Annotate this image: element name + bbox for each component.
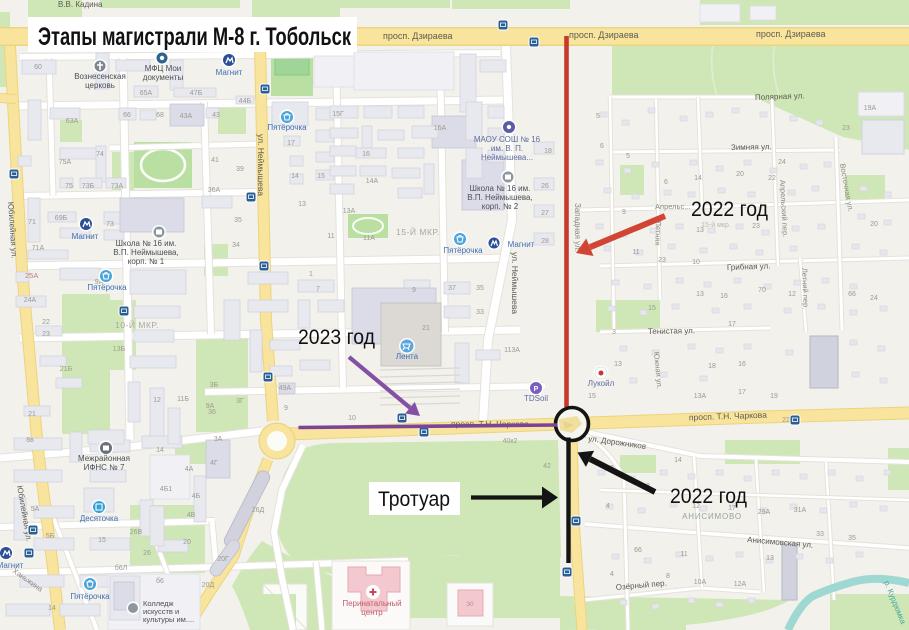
svg-text:3: 3 <box>612 329 616 336</box>
svg-text:TDSoil: TDSoil <box>524 394 548 403</box>
svg-text:11А: 11А <box>363 235 375 242</box>
svg-text:16: 16 <box>720 293 728 300</box>
svg-text:4: 4 <box>606 503 610 510</box>
svg-text:Пятёрочка: Пятёрочка <box>70 592 110 601</box>
svg-text:13: 13 <box>696 291 704 298</box>
svg-text:18: 18 <box>708 363 716 370</box>
svg-text:Тротуар: Тротуар <box>378 487 450 511</box>
svg-text:36: 36 <box>208 409 216 416</box>
svg-text:60: 60 <box>34 64 42 71</box>
svg-text:10: 10 <box>692 259 700 266</box>
svg-text:1: 1 <box>309 271 313 278</box>
svg-text:Неймышева...: Неймышева... <box>481 153 533 162</box>
svg-text:24А: 24А <box>24 297 37 304</box>
svg-text:15-Й МКР.: 15-Й МКР. <box>396 226 440 237</box>
svg-text:Пятёрочка: Пятёрочка <box>87 283 127 292</box>
svg-text:Магнит: Магнит <box>0 561 24 570</box>
svg-text:корп. № 2: корп. № 2 <box>482 202 519 211</box>
svg-text:5: 5 <box>626 153 630 160</box>
svg-text:13: 13 <box>614 361 622 368</box>
svg-text:23: 23 <box>658 257 666 264</box>
svg-text:12: 12 <box>788 291 796 298</box>
svg-text:4А: 4А <box>185 466 194 473</box>
svg-text:21: 21 <box>28 411 36 418</box>
svg-text:26В: 26В <box>130 529 143 536</box>
svg-text:13Б: 13Б <box>113 346 126 353</box>
svg-text:23: 23 <box>842 125 850 132</box>
svg-text:13: 13 <box>298 201 306 208</box>
svg-text:19А: 19А <box>864 105 877 112</box>
svg-text:66: 66 <box>848 291 856 298</box>
svg-text:Тенистая ул.: Тенистая ул. <box>648 326 695 336</box>
svg-text:13: 13 <box>766 555 774 562</box>
svg-text:3Г: 3Г <box>236 398 244 405</box>
svg-text:5Б: 5Б <box>46 533 55 540</box>
svg-text:10-Й МКР.: 10-Й МКР. <box>115 319 159 330</box>
svg-text:Десяточка: Десяточка <box>80 514 119 523</box>
svg-text:им. В. П.: им. В. П. <box>491 144 523 153</box>
svg-text:14: 14 <box>674 457 682 464</box>
svg-text:26Д: 26Д <box>252 507 265 514</box>
svg-text:6: 6 <box>664 179 668 186</box>
svg-text:16А: 16А <box>434 125 447 132</box>
svg-text:74: 74 <box>96 151 104 158</box>
svg-text:5А: 5А <box>31 506 40 513</box>
svg-text:15Г: 15Г <box>332 111 344 118</box>
svg-text:6: 6 <box>600 143 604 150</box>
svg-text:21: 21 <box>422 325 430 332</box>
svg-text:10: 10 <box>348 415 356 422</box>
svg-text:2022 год: 2022 год <box>691 198 768 221</box>
svg-text:14: 14 <box>48 605 56 612</box>
svg-text:24: 24 <box>778 159 786 166</box>
svg-text:В.В. Кадина: В.В. Кадина <box>58 0 103 9</box>
svg-text:75А: 75А <box>59 159 72 166</box>
svg-text:35: 35 <box>848 535 856 542</box>
svg-text:Полярная ул.: Полярная ул. <box>755 91 805 102</box>
svg-text:просп. Дзираева: просп. Дзираева <box>383 31 453 41</box>
svg-text:просп. Дзираева: просп. Дзираева <box>756 29 826 39</box>
svg-text:15: 15 <box>588 393 596 400</box>
svg-text:ул. Неймышева: ул. Неймышева <box>510 252 520 314</box>
svg-text:14: 14 <box>156 447 164 454</box>
svg-text:75: 75 <box>65 183 73 190</box>
svg-text:Грибная ул.: Грибная ул. <box>727 261 771 272</box>
svg-text:68: 68 <box>156 112 164 119</box>
svg-text:28: 28 <box>541 238 549 245</box>
svg-text:27: 27 <box>541 210 549 217</box>
svg-text:30: 30 <box>466 601 474 608</box>
svg-text:17: 17 <box>287 140 295 147</box>
svg-text:73Б: 73Б <box>82 183 95 190</box>
svg-text:18: 18 <box>544 148 552 155</box>
svg-text:4: 4 <box>610 571 614 578</box>
svg-text:12А: 12А <box>734 581 747 588</box>
svg-text:33: 33 <box>816 531 824 538</box>
svg-text:Вознесенская: Вознесенская <box>74 72 126 81</box>
svg-text:б6Л: б6Л <box>115 564 128 572</box>
svg-text:70: 70 <box>758 287 766 294</box>
svg-text:Этапы магистрали М-8 г. Тоболь: Этапы магистрали М-8 г. Тобольск <box>38 23 351 51</box>
svg-text:Межрайонная: Межрайонная <box>78 454 130 463</box>
svg-text:3А: 3А <box>214 436 223 443</box>
svg-text:20Г: 20Г <box>217 556 229 563</box>
svg-text:б6: б6 <box>156 577 164 585</box>
svg-text:66: 66 <box>123 112 131 119</box>
svg-text:МФЦ Мои: МФЦ Мои <box>145 64 181 73</box>
svg-text:14: 14 <box>694 175 702 182</box>
svg-text:3Б: 3Б <box>210 382 219 389</box>
svg-text:МАОУ СОШ № 16: МАОУ СОШ № 16 <box>474 135 541 144</box>
svg-text:7: 7 <box>316 286 320 293</box>
svg-text:34: 34 <box>232 242 240 249</box>
svg-text:12: 12 <box>153 397 161 404</box>
svg-text:14А: 14А <box>366 178 379 185</box>
svg-text:ул. Неймышева: ул. Неймышева <box>256 134 266 196</box>
svg-text:14: 14 <box>291 173 299 180</box>
svg-text:13А: 13А <box>343 208 356 215</box>
svg-text:65А: 65А <box>140 90 153 97</box>
svg-text:23: 23 <box>42 331 50 338</box>
svg-text:5: 5 <box>596 113 600 120</box>
svg-text:33: 33 <box>476 309 484 316</box>
svg-text:центр: центр <box>361 608 383 617</box>
svg-text:11: 11 <box>327 233 334 240</box>
svg-text:40к2: 40к2 <box>503 438 518 445</box>
svg-text:29А: 29А <box>758 509 771 516</box>
svg-text:22: 22 <box>42 319 50 326</box>
svg-text:22: 22 <box>768 175 776 182</box>
svg-text:4Г: 4Г <box>210 460 218 467</box>
svg-text:13: 13 <box>696 227 704 234</box>
svg-text:71А: 71А <box>32 245 45 252</box>
svg-text:26: 26 <box>143 550 151 557</box>
svg-text:4Б: 4Б <box>192 493 201 500</box>
svg-text:2022 год: 2022 год <box>670 485 747 508</box>
svg-text:49А: 49А <box>279 385 292 392</box>
svg-text:Пятёрочка: Пятёрочка <box>443 246 483 255</box>
svg-text:43: 43 <box>212 112 220 119</box>
svg-text:документы: документы <box>143 73 184 82</box>
svg-text:В.П. Неймышева,: В.П. Неймышева, <box>467 193 532 202</box>
svg-text:Летняя: Летняя <box>653 221 663 246</box>
svg-text:15: 15 <box>648 305 656 312</box>
svg-text:Пятёрочка: Пятёрочка <box>267 123 307 132</box>
svg-text:просп. Дзираева: просп. Дзираева <box>569 30 639 40</box>
svg-text:15-й мкр.: 15-й мкр. <box>701 221 731 229</box>
svg-text:корп. № 1: корп. № 1 <box>128 257 165 266</box>
svg-text:Школа № 16 им.: Школа № 16 им. <box>116 239 177 248</box>
svg-text:20Д: 20Д <box>202 582 215 589</box>
svg-text:37: 37 <box>448 285 456 292</box>
svg-text:16: 16 <box>738 361 746 368</box>
svg-text:Апрельс...: Апрельс... <box>655 202 690 211</box>
svg-text:41: 41 <box>211 157 219 164</box>
svg-text:ИФНС № 7: ИФНС № 7 <box>84 463 125 472</box>
svg-text:Магнит: Магнит <box>72 232 99 241</box>
svg-text:25А: 25А <box>25 271 38 280</box>
svg-text:Лукойл: Лукойл <box>588 379 615 388</box>
svg-text:культуры им....: культуры им.... <box>143 615 194 624</box>
svg-text:43А: 43А <box>180 113 193 120</box>
svg-text:Магнит: Магнит <box>216 68 243 77</box>
svg-text:Западная ул.: Западная ул. <box>573 203 582 252</box>
svg-text:39: 39 <box>236 166 244 173</box>
svg-text:73: 73 <box>106 221 114 228</box>
svg-text:17: 17 <box>738 389 746 396</box>
svg-text:10А: 10А <box>694 579 707 586</box>
svg-text:15: 15 <box>317 173 325 180</box>
svg-text:20: 20 <box>870 221 878 228</box>
svg-text:17: 17 <box>728 321 736 328</box>
svg-text:Лента: Лента <box>396 352 419 361</box>
svg-text:35: 35 <box>234 217 242 224</box>
svg-text:P: P <box>534 386 539 393</box>
svg-text:11: 11 <box>632 249 639 256</box>
svg-text:Школа № 16 им.: Школа № 16 им. <box>470 184 531 193</box>
svg-text:73А: 73А <box>111 183 124 190</box>
svg-text:АНИСИМОВО: АНИСИМОВО <box>682 512 742 521</box>
svg-text:26: 26 <box>541 183 549 190</box>
svg-text:20: 20 <box>736 171 744 178</box>
svg-text:47Б: 47Б <box>190 90 203 97</box>
svg-text:8: 8 <box>666 573 670 580</box>
svg-text:36А: 36А <box>208 187 221 194</box>
svg-text:8в: 8в <box>26 437 34 444</box>
svg-text:21Б: 21Б <box>60 366 73 373</box>
svg-text:9: 9 <box>412 287 416 294</box>
svg-text:35: 35 <box>476 285 484 292</box>
svg-text:19: 19 <box>770 393 778 400</box>
svg-text:Перинатальный: Перинатальный <box>342 599 401 608</box>
svg-text:9: 9 <box>622 209 626 216</box>
svg-text:Летний пер.: Летний пер. <box>800 268 810 310</box>
svg-text:24: 24 <box>870 295 878 302</box>
svg-text:23: 23 <box>752 223 760 230</box>
svg-text:9: 9 <box>284 405 288 412</box>
svg-text:4Б1: 4Б1 <box>160 486 172 493</box>
svg-text:69Б: 69Б <box>55 215 68 222</box>
svg-text:71: 71 <box>28 219 36 226</box>
svg-text:Зимняя ул.: Зимняя ул. <box>731 142 772 152</box>
svg-text:16: 16 <box>362 151 370 158</box>
svg-text:22: 22 <box>782 417 790 424</box>
svg-text:15: 15 <box>98 537 106 544</box>
svg-text:44Б: 44Б <box>239 98 252 105</box>
svg-text:42: 42 <box>543 463 551 470</box>
svg-text:11Б: 11Б <box>177 396 189 403</box>
svg-text:В.П. Неймышева,: В.П. Неймышева, <box>113 248 178 257</box>
svg-text:20: 20 <box>183 539 191 546</box>
svg-text:31А: 31А <box>794 507 807 514</box>
svg-text:63А: 63А <box>66 118 79 125</box>
svg-text:церковь: церковь <box>85 81 115 90</box>
svg-text:13А: 13А <box>694 393 707 400</box>
svg-text:11: 11 <box>680 551 687 558</box>
svg-text:2023 год: 2023 год <box>298 326 375 349</box>
svg-text:66: 66 <box>634 547 642 554</box>
svg-text:4В: 4В <box>187 512 196 519</box>
svg-text:113А: 113А <box>504 347 520 354</box>
svg-text:Магнит: Магнит <box>508 240 535 249</box>
